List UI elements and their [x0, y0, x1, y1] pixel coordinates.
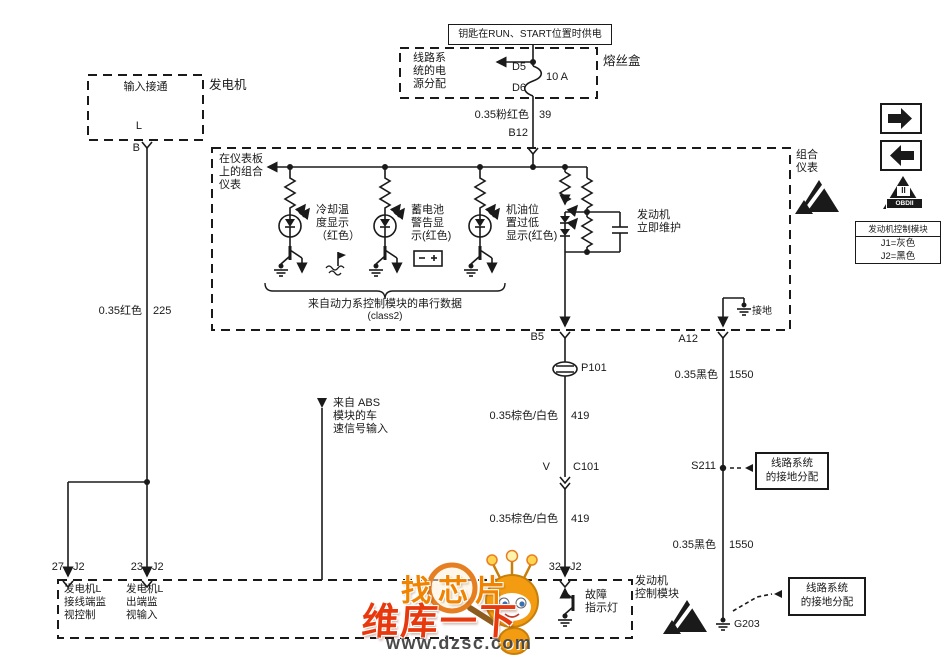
wiring-diagram-page: 钥匙在RUN、START位置时供电 熔丝盒 线路系 统的电 源分配 D5 D6 … [0, 0, 944, 663]
watermark-url: www.dzsc.com [386, 633, 532, 654]
watermark-mascot [0, 0, 944, 663]
